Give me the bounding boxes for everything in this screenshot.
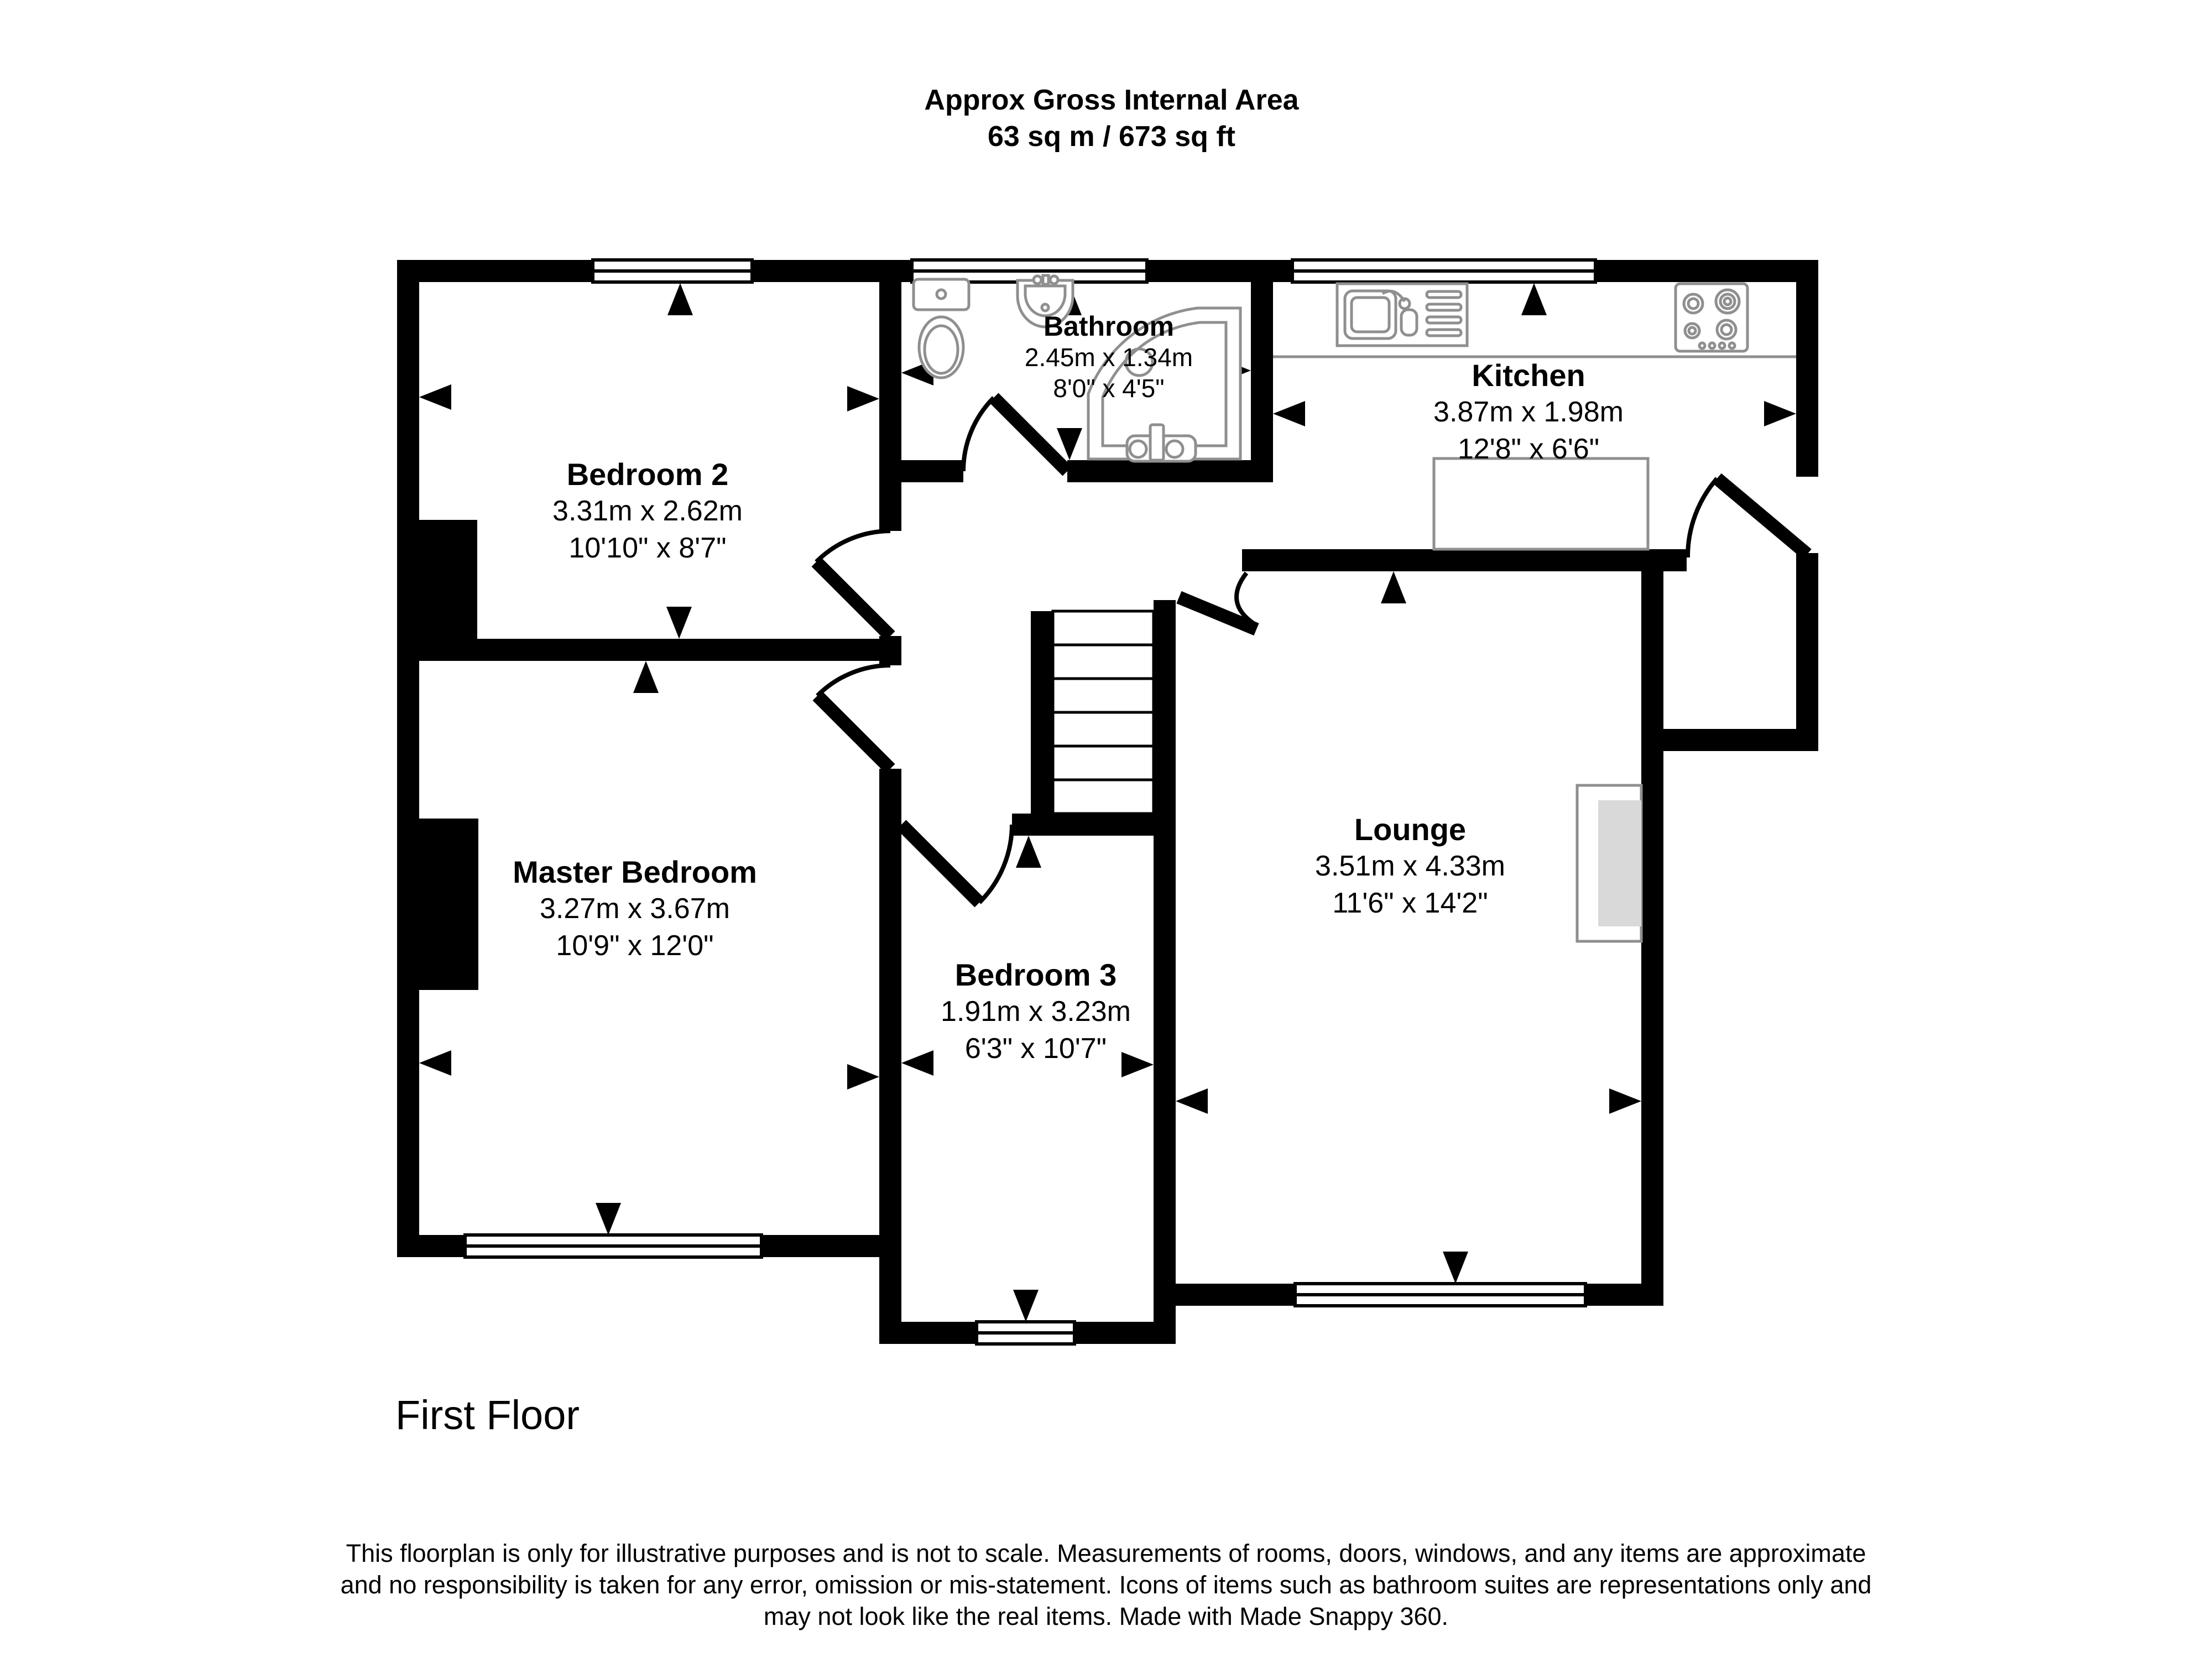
stairs (1053, 611, 1154, 814)
arrow-up-bedroom3 (1016, 836, 1041, 868)
disclaimer: This floorplan is only for illustrative … (0, 1538, 2212, 1632)
room-label-kitchen: Kitchen 3.87m x 1.98m 12'8" x 6'6" (1433, 357, 1624, 468)
window-bedroom3 (977, 1322, 1074, 1344)
arrow-left-kitchen (1273, 401, 1305, 426)
room-label-bedroom3: Bedroom 3 1.91m x 3.23m 6'3" x 10'7" (941, 956, 1131, 1067)
room-dims-imperial: 10'10" x 8'7" (552, 530, 743, 567)
chimney-breast-master (397, 819, 478, 990)
wall-bedroom2-bottom (419, 639, 879, 661)
floor-label: First Floor (395, 1391, 580, 1439)
wall-left (397, 260, 419, 1257)
room-dims-metric: 3.27m x 3.67m (513, 890, 757, 927)
header-line2: 63 sq m / 673 sq ft (988, 121, 1235, 153)
door-bathroom (963, 398, 1067, 471)
window-bedroom2 (593, 260, 752, 282)
room-dims-metric: 2.45m x 1.34m (1025, 342, 1193, 373)
fireplace (1577, 785, 1641, 941)
room-dims-metric: 3.87m x 1.98m (1433, 394, 1624, 431)
wall-bathroom-bottom-right (1067, 460, 1273, 482)
windows (465, 260, 1595, 1344)
wall-bathroom-right (1251, 282, 1273, 482)
header-line1: Approx Gross Internal Area (924, 84, 1298, 116)
room-label-master-bedroom: Master Bedroom 3.27m x 3.67m 10'9" x 12'… (513, 853, 757, 965)
wall-stairs-bottom (1012, 814, 1176, 836)
wall-stairs-left (1031, 611, 1053, 814)
room-name: Bathroom (1025, 311, 1193, 342)
disclaimer-line3: may not look like the real items. Made w… (764, 1602, 1448, 1630)
arrow-up-lounge (1381, 571, 1406, 603)
arrow-right-master (847, 1064, 879, 1090)
room-dims-metric: 3.31m x 2.62m (552, 493, 743, 530)
arrow-right-bedroom2 (847, 386, 879, 411)
window-master (465, 1235, 761, 1257)
arrow-down-bedroom2 (666, 607, 692, 639)
room-dims-imperial: 8'0" x 4'5" (1025, 373, 1193, 404)
room-label-bedroom2: Bedroom 2 3.31m x 2.62m 10'10" x 8'7" (552, 456, 743, 567)
wall-right-closing (1663, 729, 1818, 751)
room-dims-imperial: 12'8" x 6'6" (1433, 431, 1624, 468)
arrow-up-kitchen (1521, 283, 1547, 315)
room-name: Kitchen (1433, 357, 1624, 394)
door-lounge (1179, 573, 1256, 629)
room-name: Bedroom 2 (552, 456, 743, 493)
door-kitchen-entrance (1688, 478, 1807, 557)
door-bedroom3 (901, 825, 1012, 903)
wall-hall-junction (879, 636, 901, 665)
window-kitchen (1292, 260, 1595, 282)
arrow-down-lounge (1443, 1252, 1468, 1284)
disclaimer-line1: This floorplan is only for illustrative … (346, 1539, 1866, 1567)
floorplan-drawing (0, 0, 2212, 1673)
room-label-bathroom: Bathroom 2.45m x 1.34m 8'0" x 4'5" (1025, 311, 1193, 404)
arrow-left-master (419, 1050, 451, 1076)
wall-divider (1154, 600, 1176, 1344)
room-label-lounge: Lounge 3.51m x 4.33m 11'6" x 14'2" (1315, 811, 1505, 922)
hob-icon (1676, 284, 1747, 351)
door-bedroom2 (816, 531, 890, 636)
chimney-breast-bedroom2 (397, 520, 477, 639)
room-name: Master Bedroom (513, 853, 757, 890)
door-master-bedroom (817, 665, 890, 769)
window-lounge (1295, 1284, 1585, 1306)
arrow-right-lounge (1609, 1088, 1641, 1114)
toilet-icon (914, 279, 969, 378)
wall-lounge-right (1641, 570, 1663, 1306)
room-dims-metric: 1.91m x 3.23m (941, 993, 1131, 1030)
room-dims-metric: 3.51m x 4.33m (1315, 848, 1505, 885)
wall-right-upper (1796, 260, 1818, 477)
room-name: Lounge (1315, 811, 1505, 848)
arrow-down-bedroom3 (1013, 1290, 1039, 1322)
arrow-up-bedroom2 (667, 283, 693, 315)
disclaimer-line2: and no responsibility is taken for any e… (341, 1571, 1872, 1599)
arrow-up-master (633, 661, 659, 693)
wall-hall-lower (879, 769, 901, 1344)
room-dims-imperial: 6'3" x 10'7" (941, 1030, 1131, 1067)
wall-hall-upper (879, 282, 901, 531)
wall-kitchen-lounge (1242, 549, 1687, 571)
arrow-down-master (596, 1203, 621, 1235)
kitchen-sink-icon (1337, 284, 1467, 346)
floorplan-page: Approx Gross Internal Area 63 sq m / 673… (0, 0, 2212, 1673)
kitchen-unit (1434, 458, 1648, 549)
wall-bathroom-bottom-left (901, 460, 963, 482)
arrow-right-kitchen (1764, 401, 1796, 426)
arrow-left-lounge (1176, 1088, 1208, 1114)
arrow-left-bedroom2 (419, 384, 451, 410)
wall-right-lower (1796, 553, 1818, 751)
arrow-left-bedroom3 (901, 1050, 933, 1076)
room-dims-imperial: 11'6" x 14'2" (1315, 885, 1505, 922)
room-name: Bedroom 3 (941, 956, 1131, 993)
plan-header: Approx Gross Internal Area 63 sq m / 673… (924, 82, 1298, 155)
room-dims-imperial: 10'9" x 12'0" (513, 927, 757, 965)
